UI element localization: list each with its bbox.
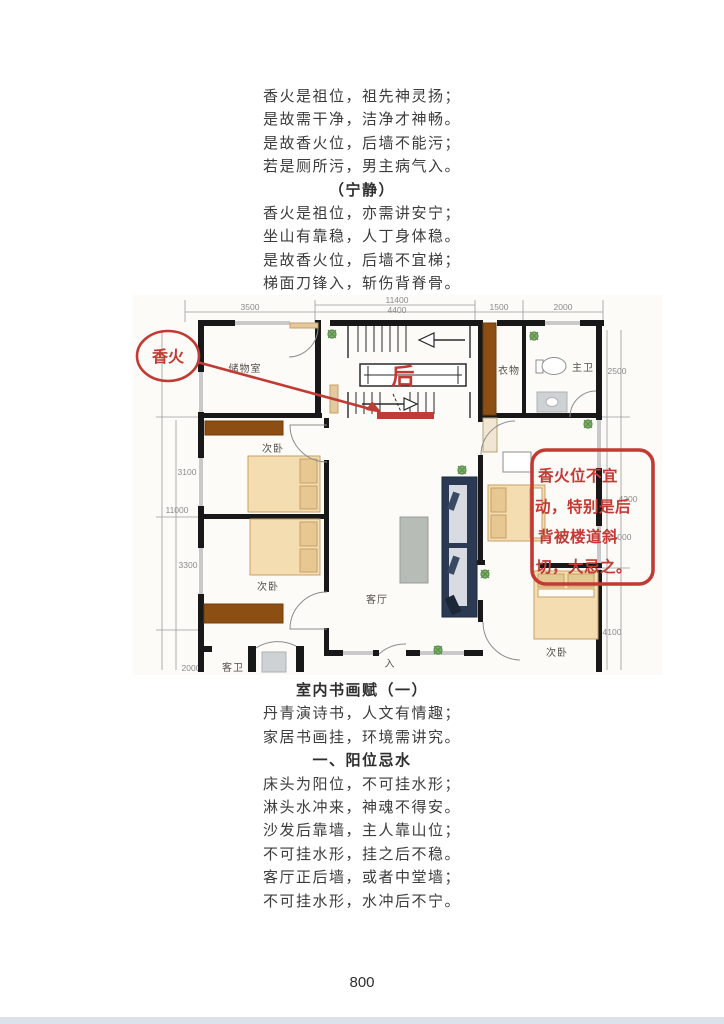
label-living: 客厅 xyxy=(366,593,388,606)
poem-line: 坐山有靠稳，人丁身体稳。 xyxy=(0,226,724,249)
label-bedroom2: 次卧 xyxy=(257,580,279,593)
toilet xyxy=(542,358,566,375)
poem-line: 淋头水冲来，神魂不得安。 xyxy=(0,797,724,820)
dim-left-1: 3100 xyxy=(178,467,197,477)
poem-line: 不可挂水形，水冲后不宁。 xyxy=(0,891,724,914)
note-line: 切，大忌之。 xyxy=(536,557,632,576)
poem-line: 床头为阳位，不可挂水形； xyxy=(0,774,724,797)
wardrobe xyxy=(205,421,283,435)
note-line: 香火位不宜 xyxy=(538,466,618,485)
section-subheading: 一、阳位忌水 xyxy=(0,750,724,773)
label-bedroom3: 次卧 xyxy=(546,646,568,659)
dim-left-4: 2000 xyxy=(182,663,201,673)
rear-label: 后 xyxy=(392,363,415,389)
wardrobe xyxy=(204,604,283,623)
poem-line: 若是厕所污，男主病气入。 xyxy=(0,156,724,179)
label-entry: 入 xyxy=(385,659,396,670)
shower xyxy=(262,652,286,672)
poem-line: 是故香火位，后墙不能污； xyxy=(0,133,724,156)
poem-line: 客厅正后墙，或者中堂墙； xyxy=(0,867,724,890)
rear-underline xyxy=(377,412,434,419)
note-line: 背被楼道斜 xyxy=(538,527,618,546)
dim-left-2: 11000 xyxy=(165,505,188,515)
poem-line: 香火是祖位，祖先神灵扬； xyxy=(0,86,724,109)
dim-top-1: 3500 xyxy=(241,302,260,312)
poem-section-top: 香火是祖位，祖先神灵扬； 是故需干净，洁净才神畅。 是故香火位，后墙不能污； 若… xyxy=(0,86,724,297)
poem-line: 丹青演诗书，人文有情趣； xyxy=(0,703,724,726)
dim-right-4: 4100 xyxy=(603,627,622,637)
poem-line: 沙发后靠墙，主人靠山位； xyxy=(0,820,724,843)
poem-line: 不可挂水形，挂之后不稳。 xyxy=(0,844,724,867)
section-title: 室内书画赋（一） xyxy=(0,680,724,703)
label-guest-bath: 客卫 xyxy=(222,661,244,674)
poem-line: 家居书画挂，环境需讲究。 xyxy=(0,727,724,750)
closet-cabinet xyxy=(483,323,496,415)
page-number: 800 xyxy=(0,974,724,991)
poem-line: 香火是祖位，亦需讲安宁； xyxy=(0,203,724,226)
poem-subheading: （宁静） xyxy=(0,180,724,203)
poem-line: 梯面刀锋入，斩伤背脊骨。 xyxy=(0,273,724,296)
dim-top-2: 4400 xyxy=(388,305,407,315)
label-closet: 衣物 xyxy=(498,364,520,377)
dim-top-total: 11400 xyxy=(385,295,408,305)
table xyxy=(400,517,428,583)
bottom-strip xyxy=(0,1017,724,1024)
floorplan-image: 11400 3500 4400 1500 2000 3100 11000 330… xyxy=(133,295,662,675)
dim-right-1: 2500 xyxy=(608,366,627,376)
poem-section-bottom: 室内书画赋（一） 丹青演诗书，人文有情趣； 家居书画挂，环境需讲究。 一、阳位忌… xyxy=(0,680,724,914)
poem-line: 是故需干净，洁净才神畅。 xyxy=(0,109,724,132)
label-master-bath: 主卫 xyxy=(572,362,594,374)
document-page: 香火是祖位，祖先神灵扬； 是故需干净，洁净才神畅。 是故香火位，后墙不能污； 若… xyxy=(0,0,724,1024)
label-bedroom1: 次卧 xyxy=(262,442,284,455)
note-line: 动，特别是后 xyxy=(535,497,631,516)
dim-top-4: 2000 xyxy=(554,302,573,312)
poem-line: 是故香火位，后墙不宜梯； xyxy=(0,250,724,273)
dim-left-3: 3300 xyxy=(179,560,198,570)
incense-label: 香火 xyxy=(151,348,185,366)
dim-top-3: 1500 xyxy=(490,302,509,312)
